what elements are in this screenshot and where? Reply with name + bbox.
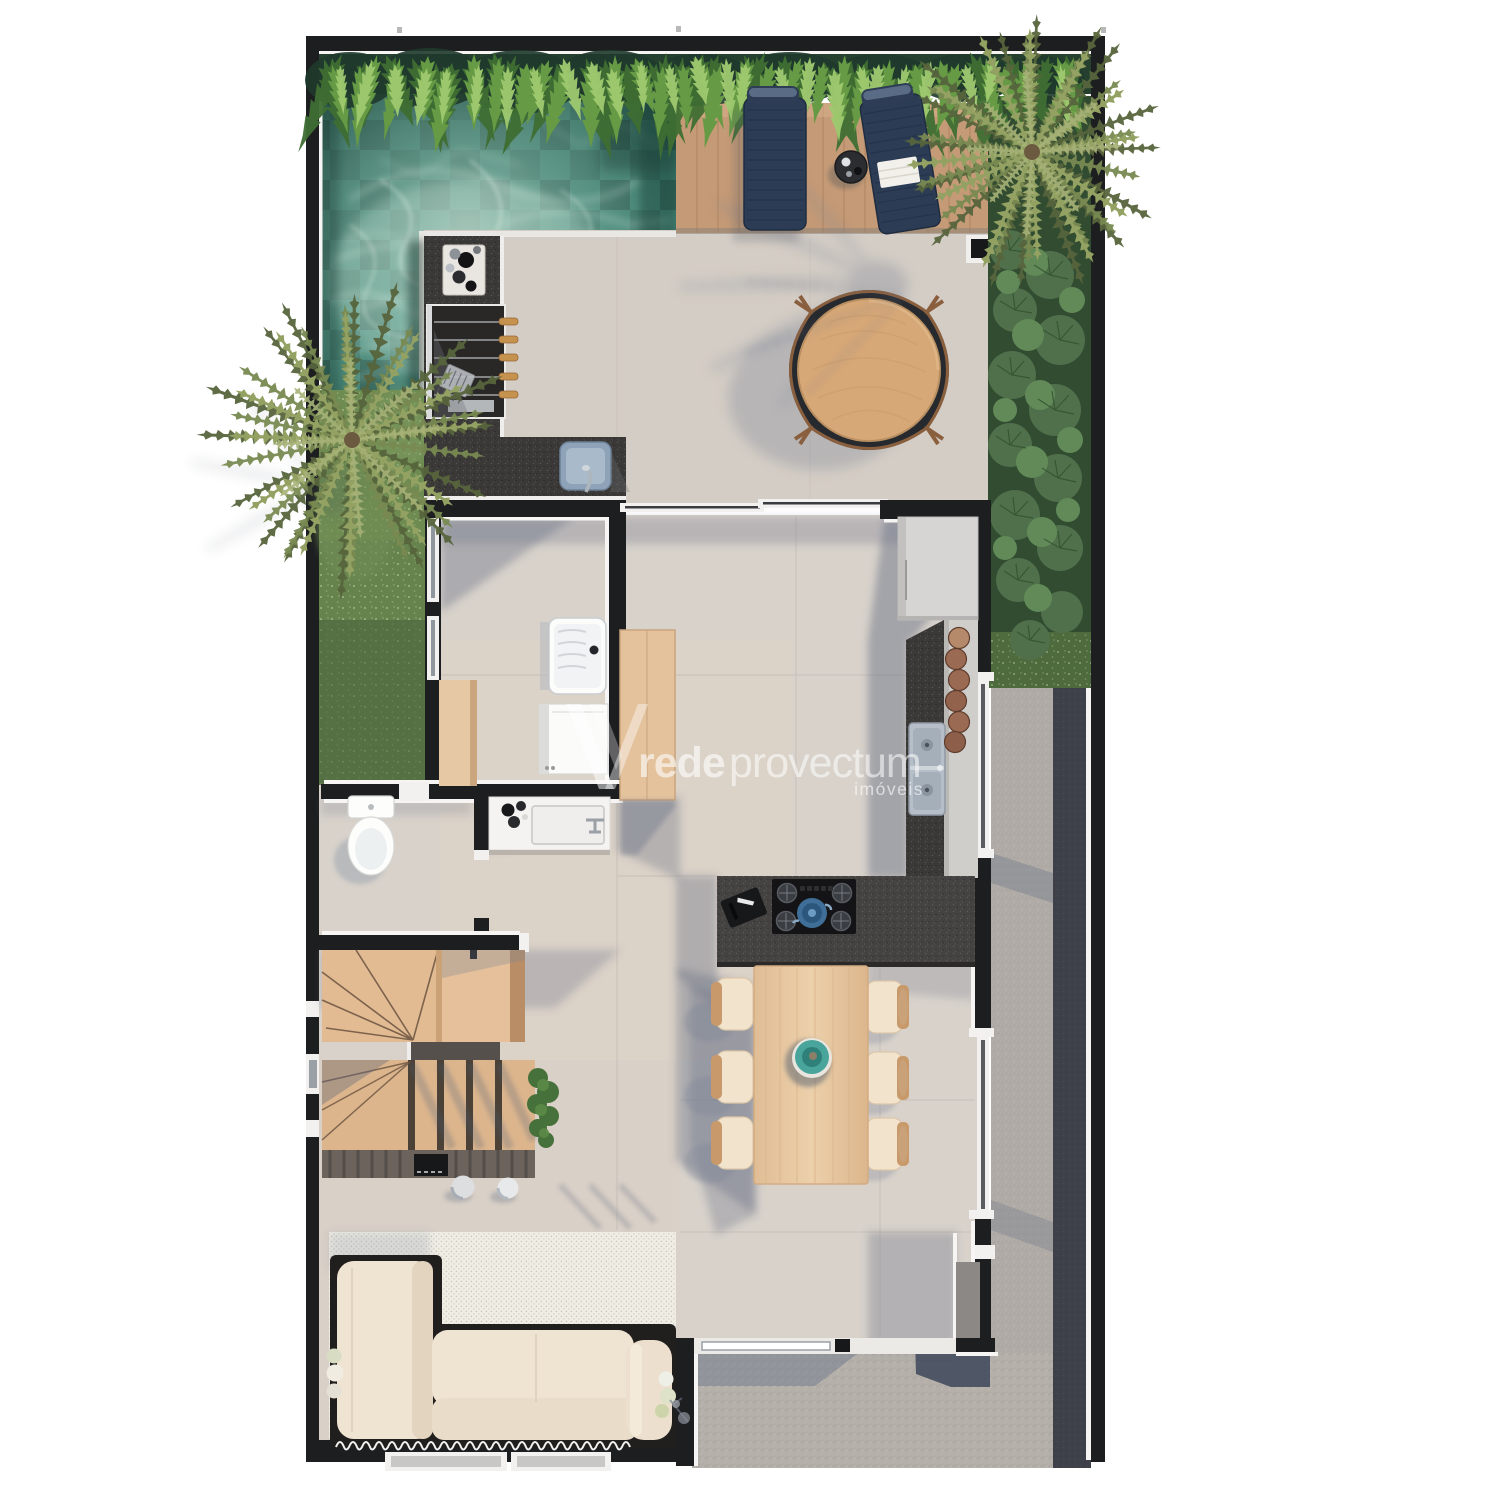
svg-text:imóveis: imóveis [854,779,924,799]
svg-text:rede: rede [638,739,725,787]
